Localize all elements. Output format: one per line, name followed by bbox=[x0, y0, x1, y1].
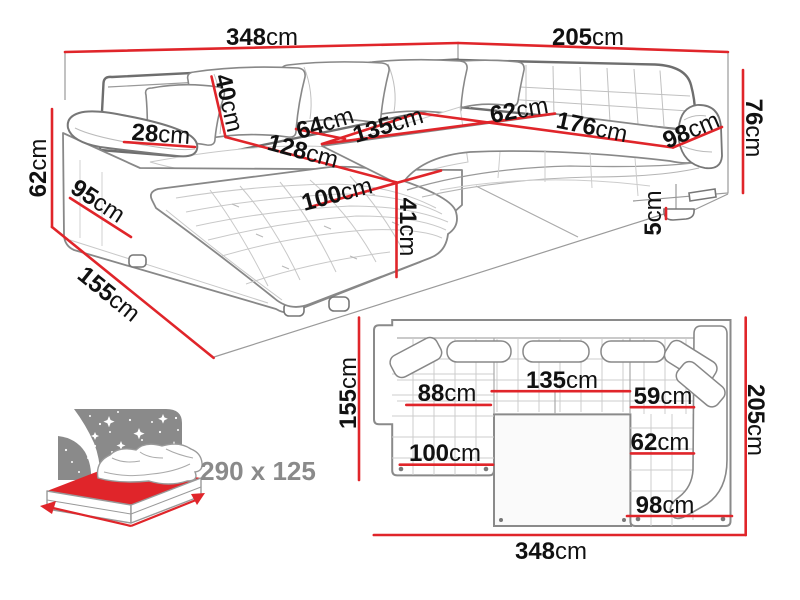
svg-text:348cm: 348cm bbox=[515, 538, 587, 565]
svg-text:5cm: 5cm bbox=[640, 190, 667, 235]
svg-text:155cm: 155cm bbox=[335, 357, 362, 429]
svg-text:88cm: 88cm bbox=[418, 380, 477, 407]
svg-text:62cm: 62cm bbox=[25, 139, 52, 198]
svg-text:76cm: 76cm bbox=[740, 99, 767, 158]
svg-text:348cm: 348cm bbox=[226, 24, 298, 51]
svg-text:205cm: 205cm bbox=[742, 384, 769, 456]
svg-text:290 x 125: 290 x 125 bbox=[200, 456, 316, 486]
svg-text:100cm: 100cm bbox=[409, 440, 481, 467]
svg-text:41cm: 41cm bbox=[394, 198, 421, 257]
svg-text:62cm: 62cm bbox=[631, 429, 690, 456]
svg-text:135cm: 135cm bbox=[526, 367, 598, 394]
svg-text:59cm: 59cm bbox=[634, 383, 693, 410]
svg-text:98cm: 98cm bbox=[636, 492, 695, 519]
svg-text:205cm: 205cm bbox=[552, 24, 624, 51]
svg-text:28cm: 28cm bbox=[131, 119, 191, 150]
